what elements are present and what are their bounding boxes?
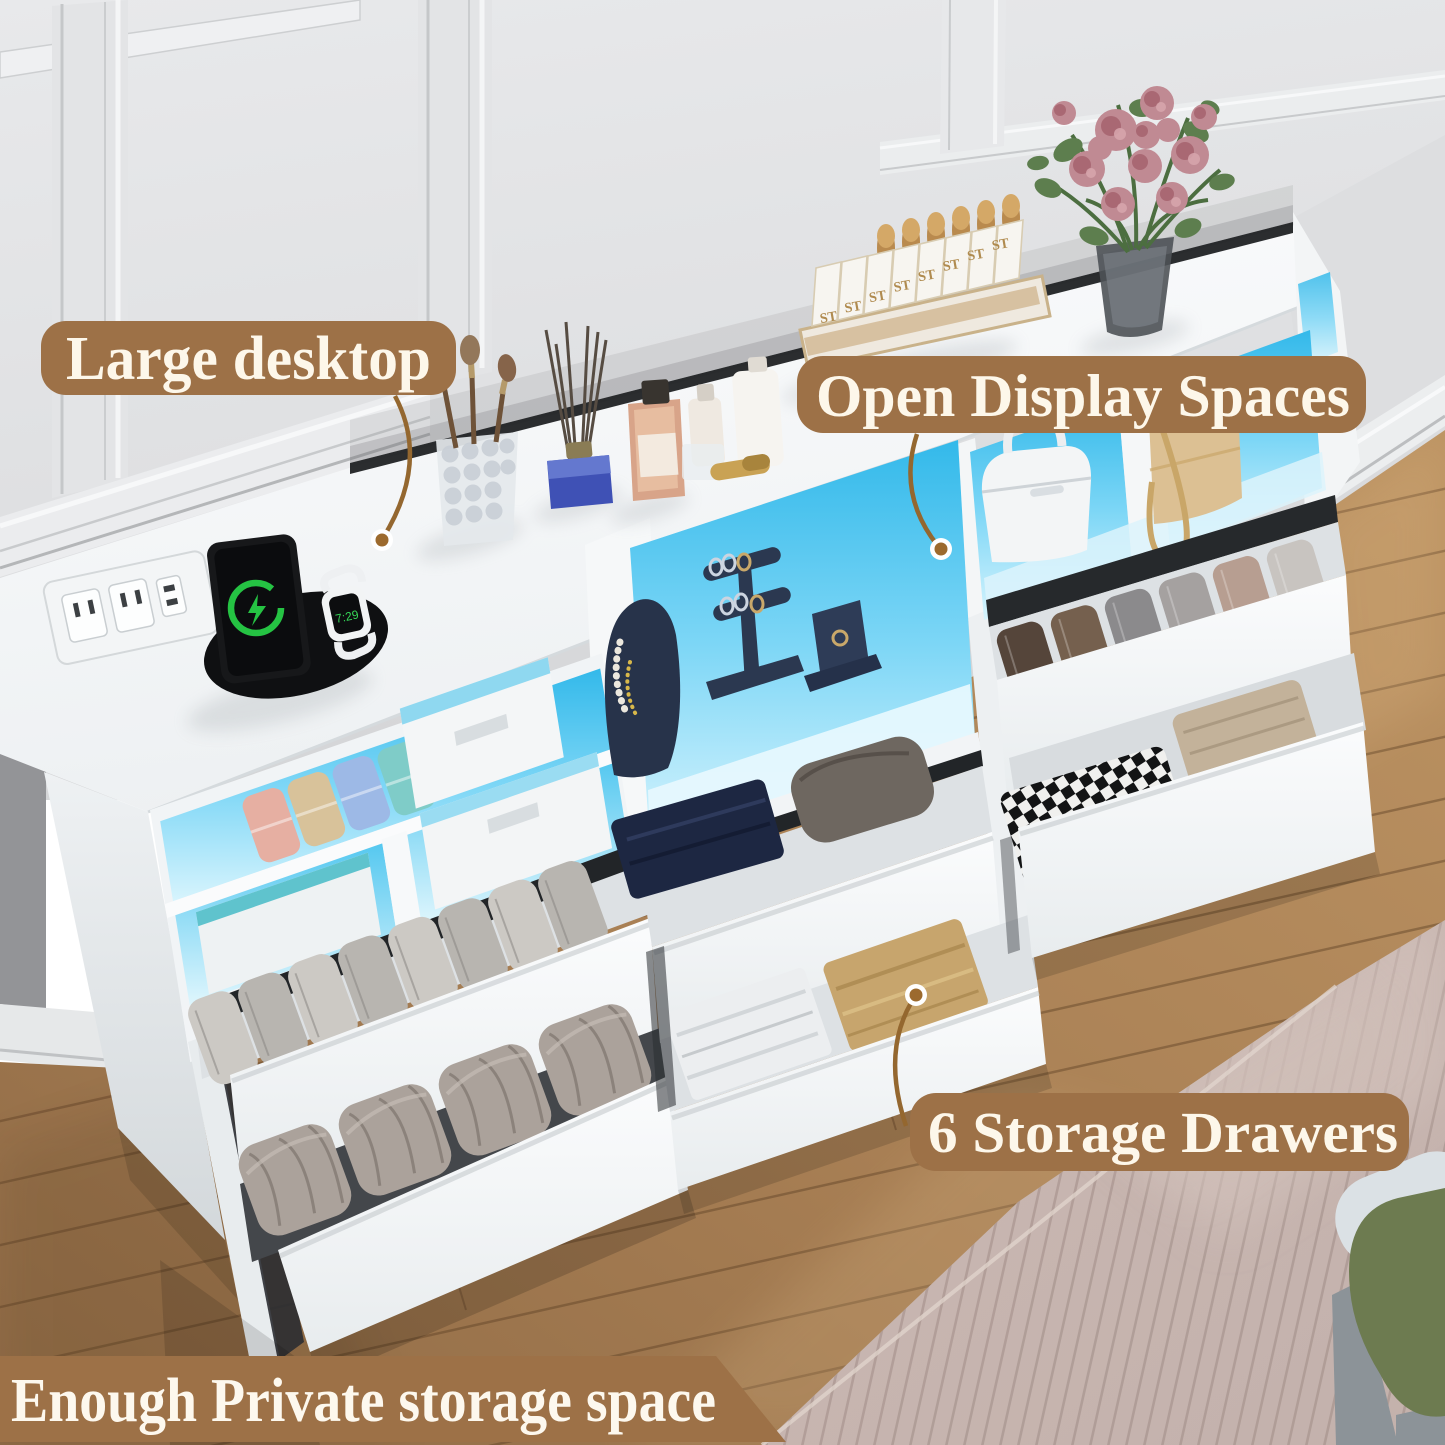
svg-text:Enough Private storage space: Enough Private storage space [11,1367,716,1435]
svg-text:Large desktop: Large desktop [66,325,431,393]
svg-text:ST: ST [893,278,913,296]
svg-text:ST: ST [991,236,1011,254]
svg-text:ST: ST [843,299,863,317]
svg-text:6 Storage Drawers: 6 Storage Drawers [928,1100,1398,1165]
svg-text:Open Display Spaces: Open Display Spaces [816,363,1350,429]
svg-text:ST: ST [966,247,986,265]
svg-text:ST: ST [942,257,962,275]
svg-text:ST: ST [819,309,839,327]
svg-text:ST: ST [868,288,888,306]
svg-text:ST: ST [917,267,937,285]
